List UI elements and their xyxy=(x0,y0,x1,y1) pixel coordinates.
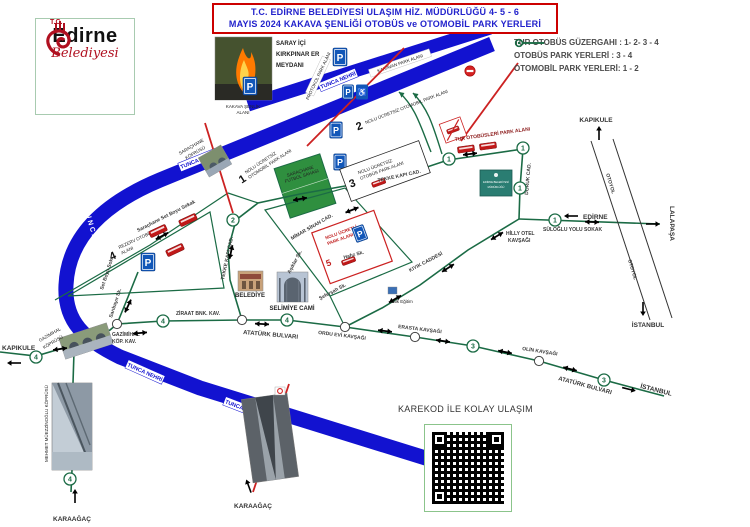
svg-text:4: 4 xyxy=(68,477,72,484)
selimiye-photo xyxy=(277,272,308,302)
qr-modules xyxy=(432,432,504,504)
svg-text:SARAY İÇİ: SARAY İÇİ xyxy=(276,40,306,47)
qr-finder-icon xyxy=(432,489,447,504)
svg-text:İSTANBUL: İSTANBUL xyxy=(640,382,673,398)
karaagac-tunnel-photo xyxy=(241,393,298,483)
parking-sign-island-3 xyxy=(342,85,353,99)
rezerv-bus-3 xyxy=(165,243,184,257)
svg-text:1: 1 xyxy=(521,146,525,153)
svg-text:TEKKE KAPI CAD.: TEKKE KAPI CAD. xyxy=(220,236,235,281)
svg-text:HİLLY OTEL: HİLLY OTEL xyxy=(506,230,535,237)
svg-text:SELİMİYE CAMİ: SELİMİYE CAMİ xyxy=(269,305,314,312)
svg-text:1: 1 xyxy=(447,157,451,164)
sarachane-football-field: SARAÇHANE FUTBOL SAHASI xyxy=(274,154,336,218)
svg-text:Şeferşah Sk.: Şeferşah Sk. xyxy=(318,282,348,302)
map-title: T.C. EDİRNE BELEDİYESİ ULAŞIM HİZ. MÜDÜR… xyxy=(212,3,558,34)
svg-text:KIYIK CADDESİ: KIYIK CADDESİ xyxy=(408,250,445,274)
svg-text:Aşıklar Sk.: Aşıklar Sk. xyxy=(286,249,304,275)
svg-text:ALANI: ALANI xyxy=(236,110,249,115)
tur-bus-1 xyxy=(457,145,475,154)
legend-row-bus-parks: OTOBÜS PARK YERLERİ : 3 - 4 xyxy=(514,51,659,60)
legend-row-car-parks: OTOMOBİL PARK YERLERİ: 1 - 2 xyxy=(514,64,659,73)
qr-finder-icon xyxy=(432,432,447,447)
svg-text:ATATÜRK BULVARI: ATATÜRK BULVARI xyxy=(243,329,299,341)
legend: TUR OTOBÜS GÜZERGAHI : 1- 2- 3 - 4 OTOBÜ… xyxy=(514,38,659,77)
title-line-2: MAYIS 2024 KAKAVA ŞENLİĞİ OTOBÜS ve OTOM… xyxy=(229,19,541,31)
map-page: P xyxy=(0,0,750,527)
route-line-icon xyxy=(514,38,544,48)
qr-code xyxy=(424,424,512,512)
svg-text:KARAAĞAÇ: KARAAĞAÇ xyxy=(53,514,91,523)
mehmet-muezzinoglu-bridge-photo xyxy=(52,383,92,470)
otoyol-highway xyxy=(591,139,672,320)
no-entry-sign-1 xyxy=(465,66,475,76)
parking-sign-island-1 xyxy=(243,77,257,95)
otoyol-label-2: OTOYOL xyxy=(626,259,638,281)
halk-egitim-sign xyxy=(388,287,397,294)
svg-text:1: 1 xyxy=(518,186,522,193)
direction-arrows xyxy=(7,126,660,503)
svg-text:KAVŞAĞI: KAVŞAĞI xyxy=(508,236,531,244)
qr-finder-icon xyxy=(489,432,504,447)
svg-text:MEYDANI: MEYDANI xyxy=(276,63,304,69)
svg-text:2: 2 xyxy=(354,120,364,133)
svg-text:3: 3 xyxy=(471,344,475,351)
handicap-parking-sign: ♿ xyxy=(356,85,368,100)
qr-caption: KAREKOD İLE KOLAY ULAŞIM xyxy=(398,404,568,414)
svg-text:♿: ♿ xyxy=(357,87,367,97)
svg-text:LALAPAŞA: LALAPAŞA xyxy=(668,206,675,241)
svg-text:2: 2 xyxy=(231,218,235,225)
svg-text:SÜLOĞLU YOLU SOKAK: SÜLOĞLU YOLU SOKAK xyxy=(543,225,602,233)
parking-sign-area2 xyxy=(330,122,343,138)
svg-text:4: 4 xyxy=(34,355,38,362)
tulip-logo-icon xyxy=(36,19,80,59)
legend-label: OTOBÜS PARK YERLERİ : 3 - 4 xyxy=(514,51,632,60)
edirne-municipality-logo: T.C. Edirne Belediyesi xyxy=(35,18,135,115)
svg-text:1: 1 xyxy=(553,218,557,225)
parking-sign-rezerv xyxy=(141,253,155,271)
svg-text:İSTANBUL: İSTANBUL xyxy=(632,321,664,329)
svg-text:KAPIKULE: KAPIKULE xyxy=(2,345,36,352)
svg-text:KIRKPINAR ER: KIRKPINAR ER xyxy=(276,52,320,58)
svg-text:KÖP. KAV.: KÖP. KAV. xyxy=(112,338,137,345)
tur-bus-2 xyxy=(479,142,497,151)
otoyol-label-1: OTOYOL xyxy=(604,173,616,195)
svg-text:OLİN KAVŞAĞI: OLİN KAVŞAĞI xyxy=(522,344,559,358)
svg-text:KAKAVA ŞENLİK: KAKAVA ŞENLİK xyxy=(226,103,260,109)
svg-text:4: 4 xyxy=(285,318,289,325)
parking-sign-island-2 xyxy=(333,48,347,66)
svg-text:ERASTA KAVŞAĞI: ERASTA KAVŞAĞI xyxy=(398,322,443,335)
svg-text:MEHMET MÜEZZİNOĞLU KÖPRÜSÜ: MEHMET MÜEZZİNOĞLU KÖPRÜSÜ xyxy=(43,385,49,462)
belediye-photo xyxy=(238,271,263,291)
traffic-sign-cluster xyxy=(275,387,285,395)
svg-text:KARAAĞAÇ: KARAAĞAÇ xyxy=(234,501,272,510)
svg-text:4: 4 xyxy=(161,319,165,326)
title-line-1: T.C. EDİRNE BELEDİYESİ ULAŞIM HİZ. MÜDÜR… xyxy=(251,7,519,19)
municipality-sign: EDİRNE BELEDİYESİ MÜDÜRLÜĞÜ xyxy=(480,170,512,196)
svg-text:3: 3 xyxy=(602,378,606,385)
svg-text:ZİRAAT BNK. KAV.: ZİRAAT BNK. KAV. xyxy=(176,310,221,317)
svg-text:KAPIKULE: KAPIKULE xyxy=(579,117,613,124)
svg-text:BELEDİYE: BELEDİYE xyxy=(235,292,265,299)
svg-text:EDİRNE: EDİRNE xyxy=(583,213,608,221)
legend-label: OTOMOBİL PARK YERLERİ: 1 - 2 xyxy=(514,64,639,73)
